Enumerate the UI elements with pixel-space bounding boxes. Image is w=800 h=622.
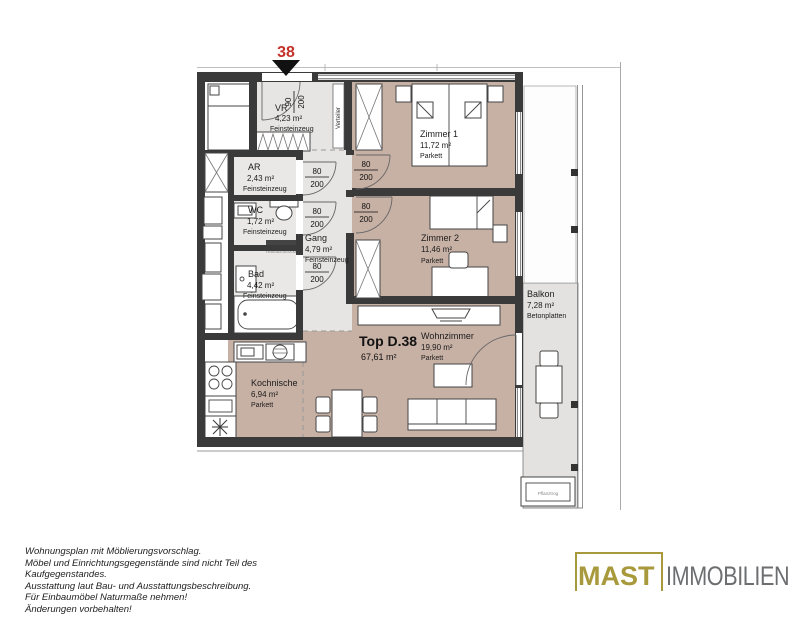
brand-logo: MAST IMMOBILIEN — [570, 549, 785, 604]
svg-text:4,79 m²: 4,79 m² — [305, 245, 332, 254]
svg-text:67,61 m²: 67,61 m² — [361, 352, 397, 362]
sofa — [408, 399, 496, 430]
svg-text:Feinsteinzeug: Feinsteinzeug — [270, 126, 314, 133]
wardrobe-zimmer2 — [356, 240, 380, 298]
svg-text:Parkett: Parkett — [251, 402, 273, 409]
kitchen-appliance-column — [205, 362, 236, 438]
svg-text:AR: AR — [248, 162, 261, 172]
svg-text:200: 200 — [310, 180, 324, 189]
svg-text:7,28 m²: 7,28 m² — [527, 301, 554, 310]
svg-text:1,72 m²: 1,72 m² — [247, 217, 274, 226]
disclaimer-line: Ausstattung laut Bau- und Ausstattungsbe… — [25, 581, 335, 593]
disclaimer-text: Wohnungsplan mit Möblierungsvorschlag. M… — [25, 546, 335, 616]
logo-secondary-text: IMMOBILIEN — [666, 561, 789, 592]
svg-text:Bad: Bad — [248, 269, 264, 279]
double-bed — [396, 84, 503, 166]
svg-text:200: 200 — [310, 275, 324, 284]
svg-text:Parkett: Parkett — [421, 355, 443, 362]
svg-text:VR: VR — [275, 103, 288, 113]
svg-text:11,46 m²: 11,46 m² — [421, 245, 452, 254]
entrance-marker: 38 — [272, 44, 300, 76]
svg-text:11,72 m²: 11,72 m² — [420, 141, 451, 150]
svg-text:80: 80 — [313, 207, 322, 216]
freezer-star-icon — [212, 418, 228, 436]
vr-coat-rack — [256, 132, 310, 151]
svg-text:Feinsteinzeug: Feinsteinzeug — [243, 229, 287, 236]
svg-text:Feinsteinzeug: Feinsteinzeug — [305, 257, 349, 264]
svg-text:80: 80 — [362, 160, 371, 169]
unit-number: 38 — [277, 44, 295, 61]
svg-text:4,23 m²: 4,23 m² — [275, 114, 302, 123]
wall-niches — [202, 197, 222, 329]
svg-text:4,42 m²: 4,42 m² — [247, 281, 274, 290]
svg-text:Zimmer 2: Zimmer 2 — [421, 233, 459, 243]
floor-plan-canvas: Handtuchtrockner — [0, 0, 800, 622]
svg-text:Betonplatten: Betonplatten — [527, 313, 566, 320]
shaft-ar — [205, 153, 228, 192]
svg-text:6,94 m²: 6,94 m² — [251, 390, 278, 399]
sideboard-tv — [358, 306, 500, 325]
verteiler-label: Verteiler — [336, 107, 342, 129]
planter-label: Pflanztrog — [538, 491, 559, 496]
disclaimer-line: Wohnungsplan mit Möblierungsvorschlag. — [25, 546, 335, 558]
svg-text:Gang: Gang — [305, 233, 327, 243]
wardrobe-zimmer1 — [356, 84, 382, 150]
svg-text:Feinsteinzeug: Feinsteinzeug — [243, 293, 287, 300]
disclaimer-line: Änderungen vorbehalten! — [25, 604, 335, 616]
verteiler-niche: Verteiler — [333, 84, 344, 148]
svg-text:Balkon: Balkon — [527, 289, 555, 299]
disclaimer-line: Für Einbaumöbel Naturmaße nehmen! — [25, 592, 335, 604]
svg-text:80: 80 — [313, 167, 322, 176]
svg-text:Top D.38: Top D.38 — [359, 333, 417, 349]
svg-text:WC: WC — [248, 205, 263, 215]
svg-text:Zimmer 1: Zimmer 1 — [420, 129, 458, 139]
svg-text:Parkett: Parkett — [420, 153, 442, 160]
svg-text:200: 200 — [359, 215, 373, 224]
svg-text:200: 200 — [359, 173, 373, 182]
svg-text:80: 80 — [362, 202, 371, 211]
kitchen-counter — [234, 342, 306, 362]
balcony-furniture — [536, 351, 562, 418]
disclaimer-line: Kaufgegenstandes. — [25, 569, 335, 581]
svg-text:2,43 m²: 2,43 m² — [247, 174, 274, 183]
svg-text:200: 200 — [297, 95, 306, 109]
svg-text:200: 200 — [310, 220, 324, 229]
logo-primary-text: MAST — [578, 561, 655, 592]
neighbor-bed — [208, 84, 250, 150]
disclaimer-line: Möbel und Einrichtungsgegenstände sind n… — [25, 558, 335, 570]
dining-set — [316, 390, 377, 437]
svg-text:Parkett: Parkett — [421, 258, 443, 265]
svg-text:Feinsteinzeug: Feinsteinzeug — [243, 186, 287, 193]
svg-text:Kochnische: Kochnische — [251, 378, 298, 388]
svg-text:19,90 m²: 19,90 m² — [421, 343, 453, 352]
svg-text:Wohnzimmer: Wohnzimmer — [421, 331, 474, 341]
planter-box: Pflanztrog — [521, 477, 575, 506]
bad-bathtub — [234, 296, 302, 333]
floor-plan-page: Handtuchtrockner — [0, 0, 800, 622]
